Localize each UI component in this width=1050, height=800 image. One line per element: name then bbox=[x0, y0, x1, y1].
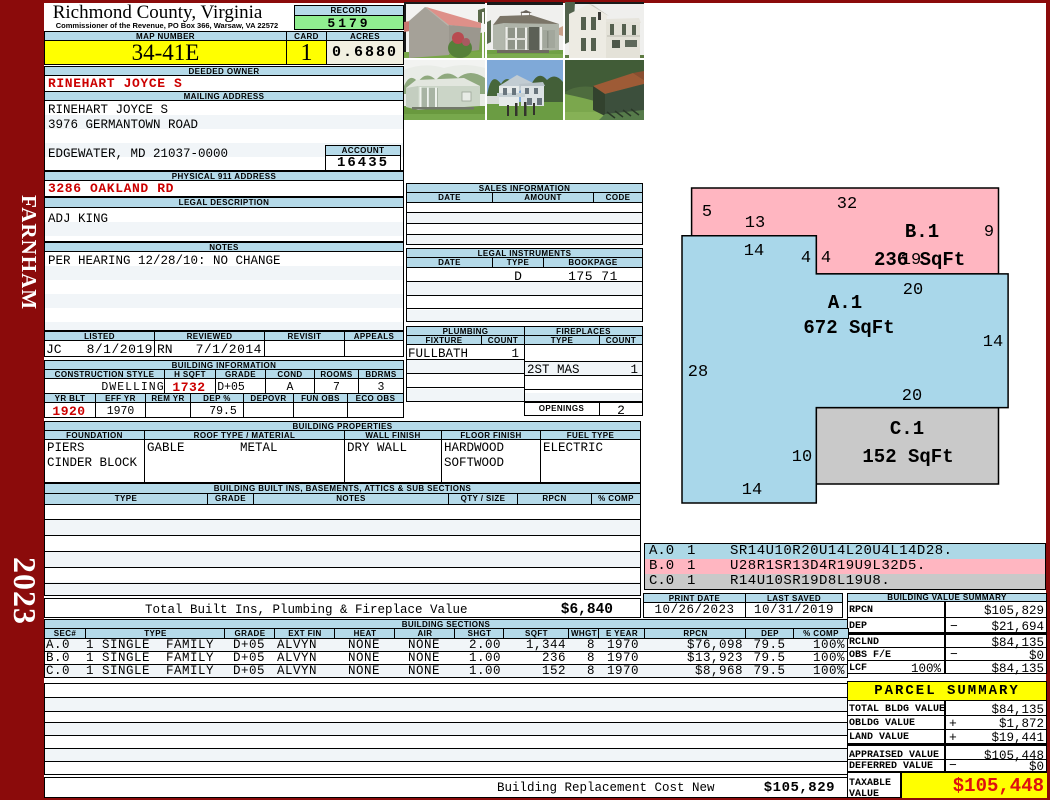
svg-text:4: 4 bbox=[821, 249, 831, 268]
svg-text:10: 10 bbox=[792, 448, 812, 467]
svg-text:C.1: C.1 bbox=[890, 418, 924, 440]
svg-text:672 SqFt: 672 SqFt bbox=[803, 317, 894, 339]
svg-text:236 SqFt: 236 SqFt bbox=[874, 249, 965, 271]
svg-text:A.1: A.1 bbox=[828, 292, 862, 314]
svg-text:14: 14 bbox=[983, 333, 1003, 352]
svg-text:152 SqFt: 152 SqFt bbox=[862, 446, 953, 468]
svg-text:5: 5 bbox=[702, 203, 712, 222]
svg-text:14: 14 bbox=[742, 481, 762, 500]
svg-text:20: 20 bbox=[903, 281, 923, 300]
svg-text:32: 32 bbox=[837, 195, 857, 214]
svg-text:14: 14 bbox=[744, 242, 764, 261]
svg-text:B.1: B.1 bbox=[905, 221, 939, 243]
svg-text:20: 20 bbox=[902, 387, 922, 406]
svg-text:13: 13 bbox=[745, 214, 765, 233]
svg-text:4: 4 bbox=[801, 249, 811, 268]
svg-text:28: 28 bbox=[688, 363, 708, 382]
svg-text:9: 9 bbox=[984, 223, 994, 242]
